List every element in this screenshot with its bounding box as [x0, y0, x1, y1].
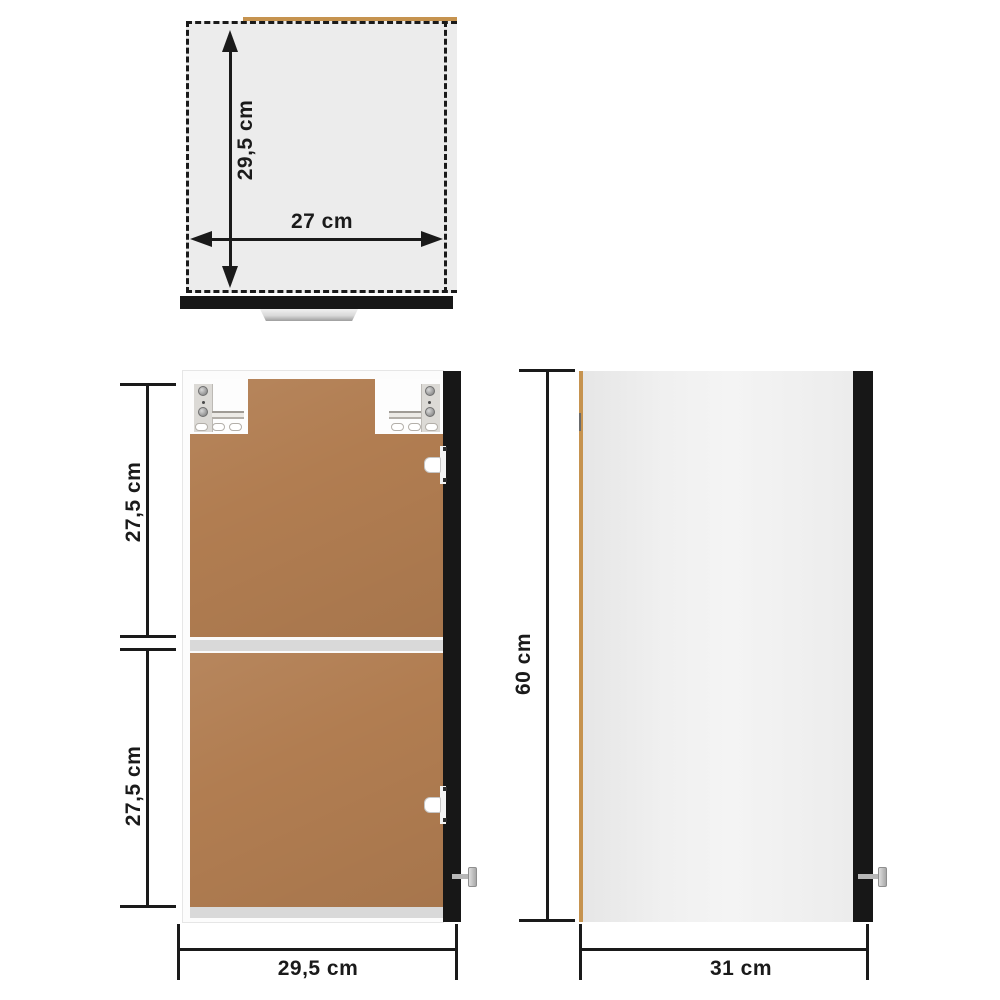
dimension-arrow-shaft: [205, 238, 430, 241]
dimension-line: [546, 371, 549, 922]
arrowhead-up-icon: [222, 30, 238, 52]
bracket-slot: [408, 423, 421, 431]
pin-hole-icon: [202, 401, 205, 404]
screw-icon: [198, 407, 208, 417]
side-view-panel: [583, 371, 853, 922]
dimension-label: 27,5 cm: [122, 746, 146, 827]
dimension-tick: [120, 648, 176, 651]
top-view-dashed-border-top: [186, 21, 457, 24]
dimension-tick: [177, 924, 180, 980]
dimension-tick: [120, 635, 176, 638]
arrowhead-left-icon: [190, 231, 212, 247]
dimension-line: [146, 384, 149, 637]
bracket-slot: [212, 423, 225, 431]
hinge-screw-icon: [443, 787, 447, 791]
dimension-tick: [120, 383, 176, 386]
screw-icon: [198, 386, 208, 396]
screw-icon: [425, 407, 435, 417]
dimension-label: 27 cm: [291, 210, 353, 234]
top-view-dashed-border-left: [186, 21, 189, 293]
dimension-line: [146, 648, 149, 907]
hinge-arm: [424, 797, 441, 813]
bracket-rail: [212, 411, 244, 419]
top-view-door-handle: [260, 309, 358, 321]
front-view-back-panel-lower: [190, 653, 443, 907]
bracket-slot: [195, 423, 208, 431]
knob-cap: [878, 867, 887, 887]
dimension-label: 60 cm: [512, 633, 536, 695]
knob-cap: [468, 867, 477, 887]
top-view-door-panel: [180, 296, 453, 309]
dimension-label: 27,5 cm: [122, 462, 146, 543]
dimension-tick: [519, 369, 575, 372]
bracket-slot: [229, 423, 242, 431]
top-view-dashed-border-right: [444, 21, 447, 293]
top-view-dashed-border-bottom: [186, 290, 457, 293]
bracket-slot: [391, 423, 404, 431]
dimension-label: 31 cm: [710, 957, 772, 981]
dimension-tick: [455, 924, 458, 980]
dimension-tick: [866, 924, 869, 980]
screw-icon: [425, 386, 435, 396]
bracket-slot: [425, 423, 438, 431]
dimension-line: [177, 948, 458, 951]
top-view-outline-fill: [186, 21, 457, 293]
dimension-line: [579, 948, 869, 951]
arrowhead-down-icon: [222, 266, 238, 288]
side-view-bracket-mark: [579, 413, 581, 431]
product-dimension-diagram: 29,5 cm 27 cm: [0, 0, 1000, 1000]
bracket-rail: [389, 411, 421, 419]
knob-stem: [858, 874, 880, 879]
hinge-screw-icon: [443, 447, 447, 451]
front-view-bottom-panel: [190, 907, 443, 918]
dimension-label: 29,5 cm: [234, 100, 258, 181]
front-view-shelf: [190, 640, 443, 651]
side-view-door-edge: [853, 371, 873, 922]
arrowhead-right-icon: [421, 231, 443, 247]
dimension-tick: [120, 905, 176, 908]
pin-hole-icon: [428, 401, 431, 404]
dimension-tick: [579, 924, 582, 980]
hinge-screw-icon: [443, 478, 447, 482]
dimension-tick: [519, 919, 575, 922]
hinge-screw-icon: [443, 818, 447, 822]
hinge-arm: [424, 457, 441, 473]
dimension-label: 29,5 cm: [278, 957, 359, 981]
